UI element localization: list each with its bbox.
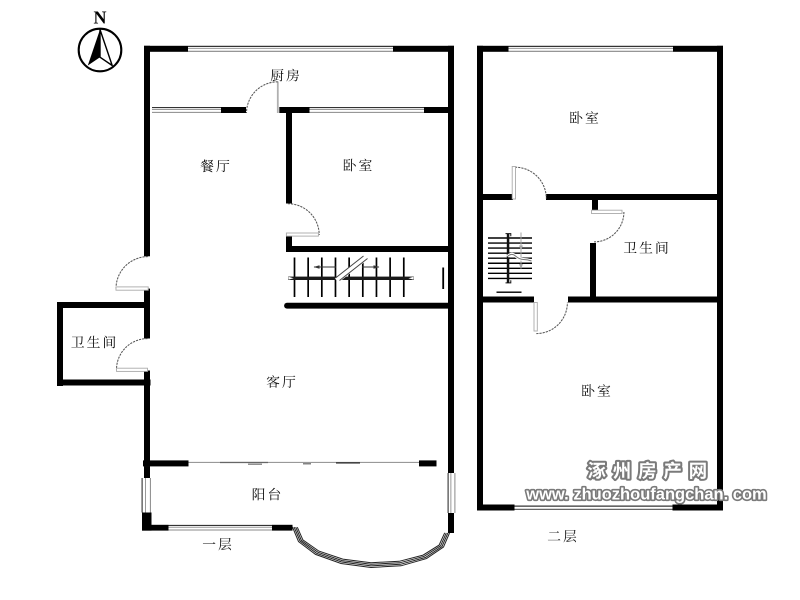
svg-text:www. zhuozhoufangchan. com: www. zhuozhoufangchan. com — [525, 486, 766, 504]
svg-text:N: N — [94, 8, 107, 28]
